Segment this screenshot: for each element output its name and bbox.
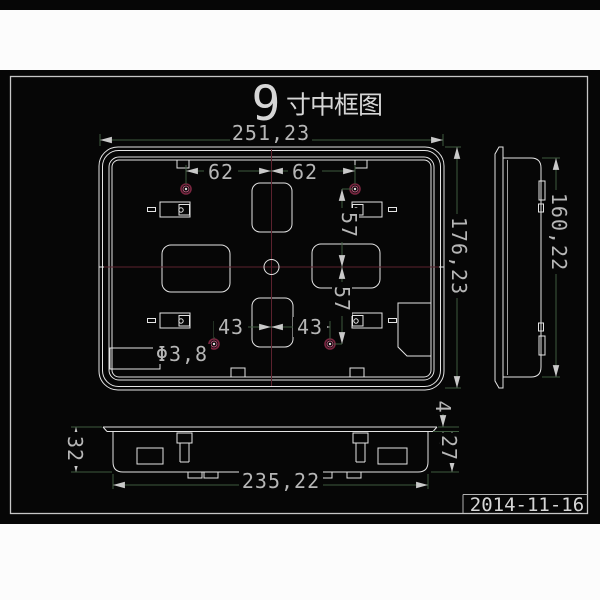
- dim-top-hole-right: 62: [292, 160, 318, 184]
- dim-hole-row-lower: 57: [330, 286, 354, 312]
- dim-bottom-hole-left: 43: [218, 315, 244, 339]
- dim-front-height: 176,23: [447, 217, 471, 295]
- cad-drawing-page: 2014-11-16 9 寸中框图: [0, 0, 600, 600]
- drawing-date: 2014-11-16: [470, 494, 584, 516]
- screw-hole-top-left: [181, 184, 191, 194]
- cad-drawing: 2014-11-16 9 寸中框图: [0, 0, 600, 600]
- dim-front-width: 251,23: [232, 121, 310, 145]
- title-text: 寸中框图: [286, 91, 382, 120]
- dim-bottom-hole-right: 43: [297, 315, 323, 339]
- dim-hole-row-upper: 57: [337, 212, 361, 238]
- dim-bottom-width: 235,22: [242, 469, 320, 493]
- dim-side-height: 160,22: [547, 193, 571, 271]
- dim-top-hole-left: 62: [208, 160, 234, 184]
- dim-total-depth: 32: [63, 436, 87, 462]
- dim-body-depth: 27: [437, 435, 461, 461]
- top-black-band: [0, 0, 600, 10]
- screw-hole-bottom-right: [325, 339, 335, 349]
- dim-flange-thickness: 4: [431, 400, 455, 413]
- hole-diameter-label: Φ3,8: [156, 342, 208, 366]
